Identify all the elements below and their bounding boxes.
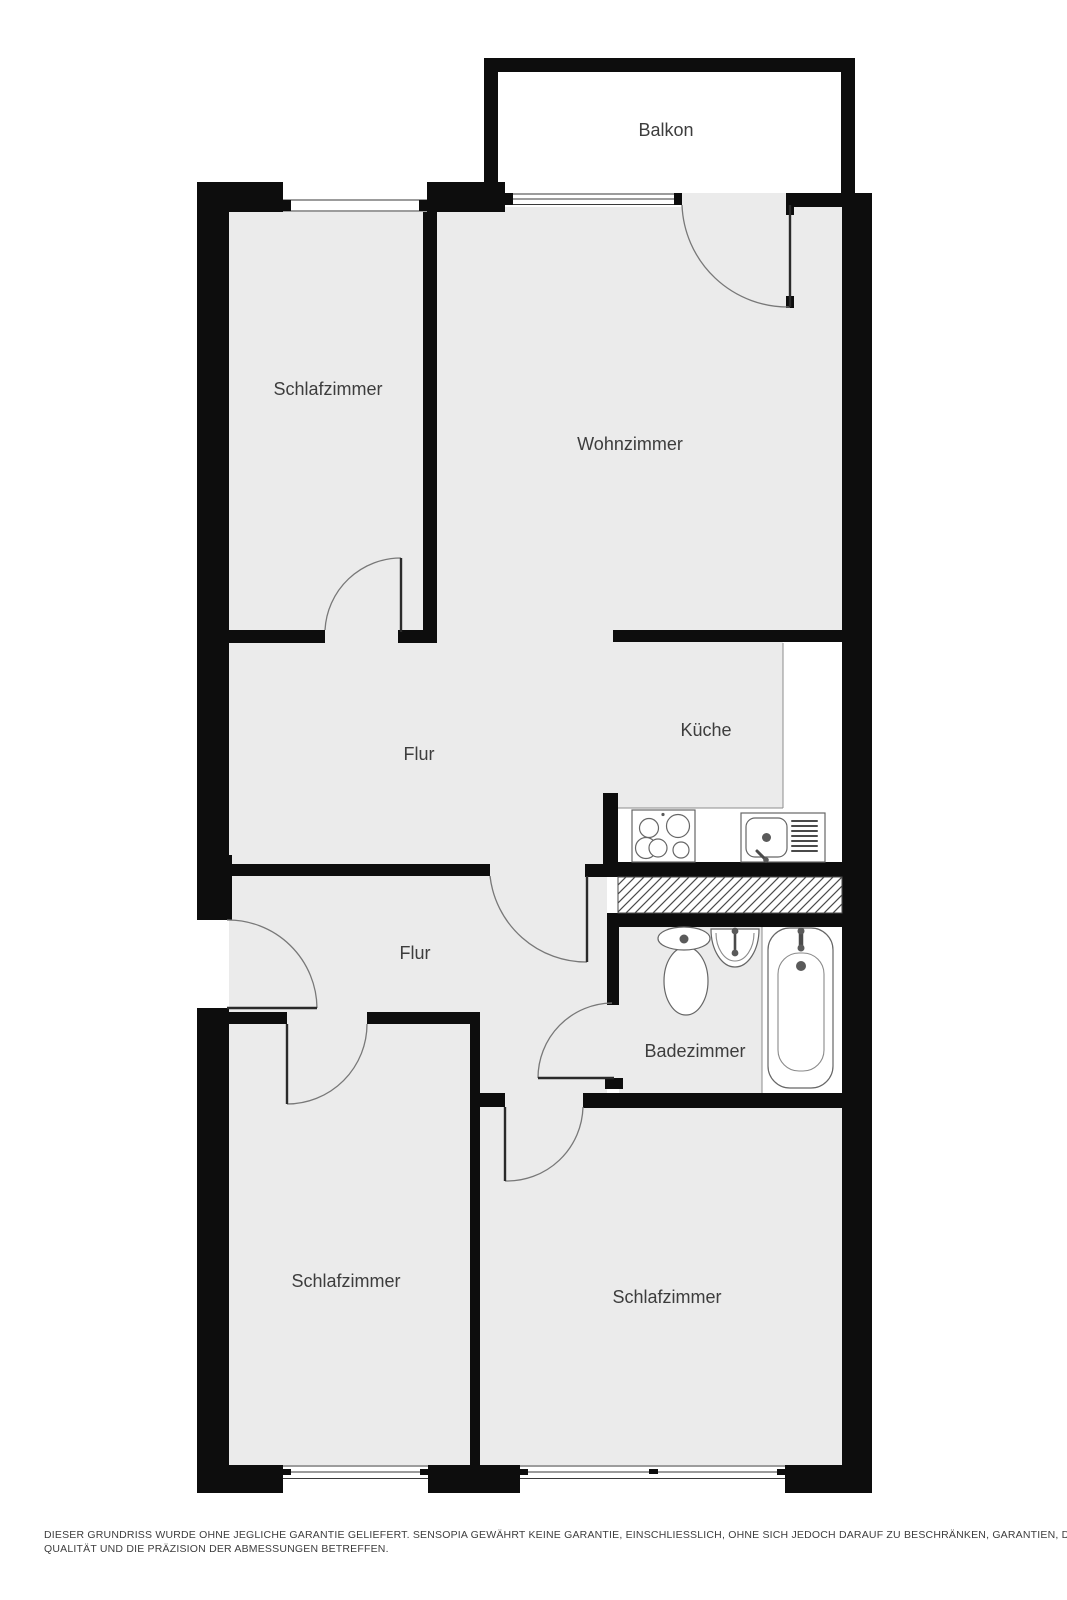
wall-wohnzimmer-kueche — [613, 630, 842, 642]
balcony-wall-right — [841, 58, 855, 193]
outer-wall-left — [197, 182, 229, 920]
door-threshold — [607, 1005, 619, 1078]
room-label-wohnzimmer: Wohnzimmer — [577, 434, 683, 454]
room-label-schlafzimmer-bottom-left: Schlafzimmer — [291, 1271, 400, 1291]
outer-wall-bottom — [197, 1465, 283, 1493]
balcony-wall-left — [484, 58, 498, 193]
wall-flur-divider — [227, 864, 490, 876]
stove-icon — [632, 810, 695, 862]
window-balkon — [505, 193, 682, 207]
outer-wall-bottom — [785, 1465, 872, 1493]
room-schlafzimmer-top-floor — [228, 210, 423, 630]
floor-plan: Balkon Schlafzimmer Wohnzimmer Flur Küch… — [0, 0, 1067, 1600]
wall-bedroom-divider — [470, 1024, 480, 1465]
wall-schlafzimmer-wohnzimmer — [423, 205, 437, 643]
balcony-wall-top — [484, 58, 855, 72]
door-threshold — [505, 1093, 583, 1107]
wall-badezimmer-left — [607, 913, 619, 1005]
room-label-schlafzimmer-top: Schlafzimmer — [273, 379, 382, 399]
window-schlafzimmer-top — [283, 182, 427, 212]
window-schlafzimmer-bottom-right — [520, 1465, 785, 1495]
window-schlafzimmer-bottom-left — [283, 1465, 428, 1495]
kitchen-sink-icon — [741, 813, 825, 863]
balcony-door-threshold — [682, 193, 790, 207]
wall-schlafzimmer-flur — [227, 630, 325, 643]
duct-hatch — [618, 877, 842, 913]
outer-wall-left — [197, 1008, 229, 1493]
disclaimer-line-1: DIESER GRUNDRISS WURDE OHNE JEGLICHE GAR… — [44, 1528, 1067, 1542]
wall-counter-bottom — [603, 862, 842, 877]
floor-plan-page: Balkon Schlafzimmer Wohnzimmer Flur Küch… — [0, 0, 1067, 1600]
outer-wall-bottom — [428, 1465, 520, 1493]
door-threshold — [490, 864, 585, 876]
room-label-badezimmer: Badezimmer — [644, 1041, 745, 1061]
entry-jamb — [197, 855, 232, 920]
outer-wall-right — [842, 193, 872, 1493]
disclaimer-line-2: QUALITÄT UND DIE PRÄZISION DER ABMESSUNG… — [44, 1542, 1067, 1556]
door-hinge-block — [605, 1078, 623, 1089]
outer-wall-top — [197, 182, 283, 212]
wall-duct-bottom — [607, 913, 842, 927]
wall-schlafzimmer-top — [583, 1093, 842, 1108]
floors — [192, 72, 842, 1465]
wall-flur-schlafzimmer — [367, 1012, 480, 1024]
door-threshold — [287, 1012, 367, 1024]
room-label-flur-lower: Flur — [400, 943, 431, 963]
room-schlafzimmer-bottom-right-floor — [480, 1107, 842, 1465]
bathtub-icon — [768, 928, 833, 1089]
room-label-kueche: Küche — [680, 720, 731, 740]
door-threshold — [325, 630, 398, 643]
entry-recess — [192, 920, 229, 1008]
disclaimer: DIESER GRUNDRISS WURDE OHNE JEGLICHE GAR… — [44, 1528, 1067, 1556]
room-label-schlafzimmer-bottom-right: Schlafzimmer — [612, 1287, 721, 1307]
wall-schlafzimmer-flur — [398, 630, 437, 643]
room-label-flur-upper: Flur — [404, 744, 435, 764]
room-wohnzimmer-floor — [437, 205, 842, 632]
wall-flur-schlafzimmer — [197, 1012, 287, 1024]
room-label-balkon: Balkon — [638, 120, 693, 140]
wall-schlafzimmer-top — [478, 1093, 505, 1107]
room-schlafzimmer-bottom-left-floor — [228, 1024, 470, 1465]
